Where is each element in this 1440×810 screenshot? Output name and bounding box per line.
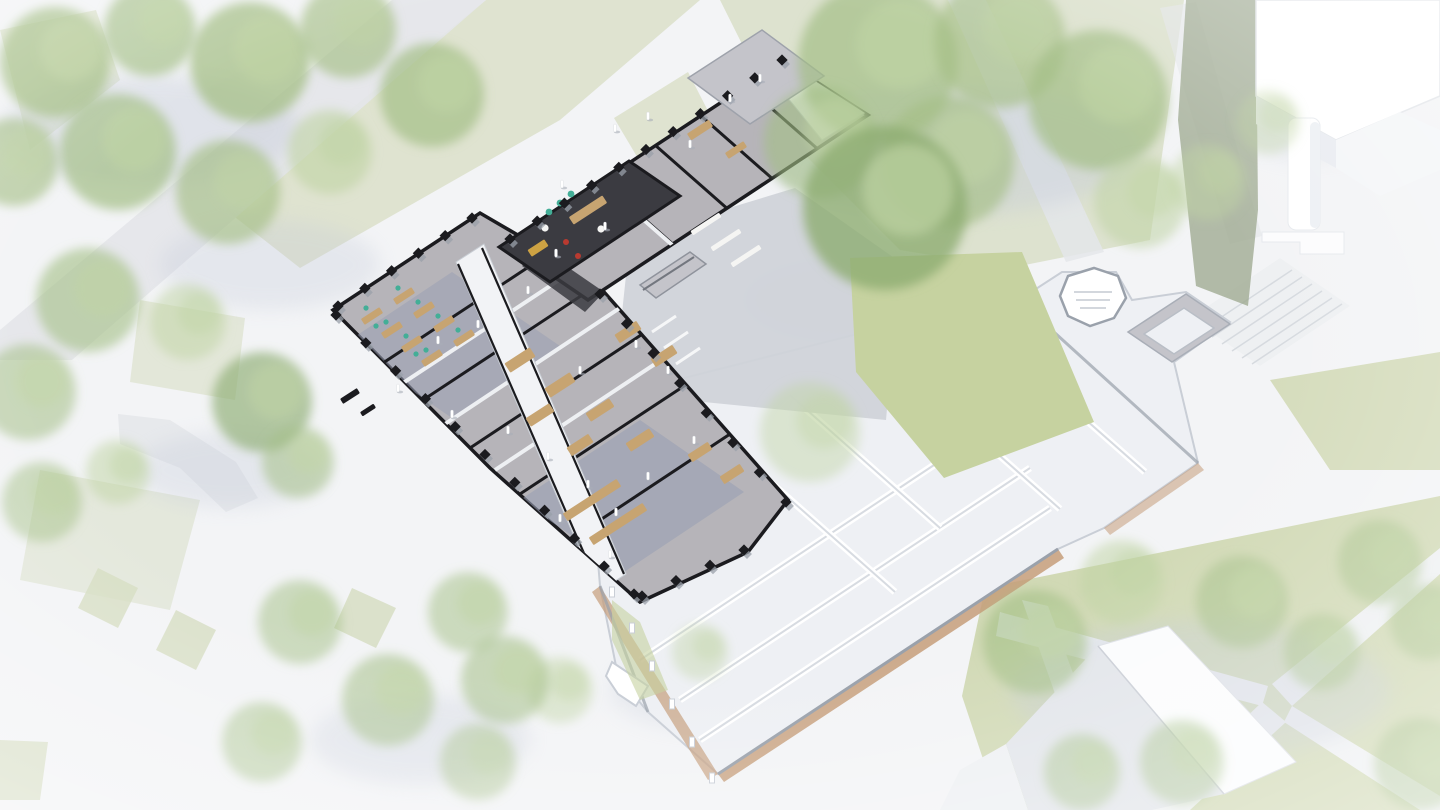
- atmospheric-vignette: [0, 0, 1440, 810]
- scene-canvas: [0, 0, 1440, 810]
- architectural-aerial-rendering: [0, 0, 1440, 810]
